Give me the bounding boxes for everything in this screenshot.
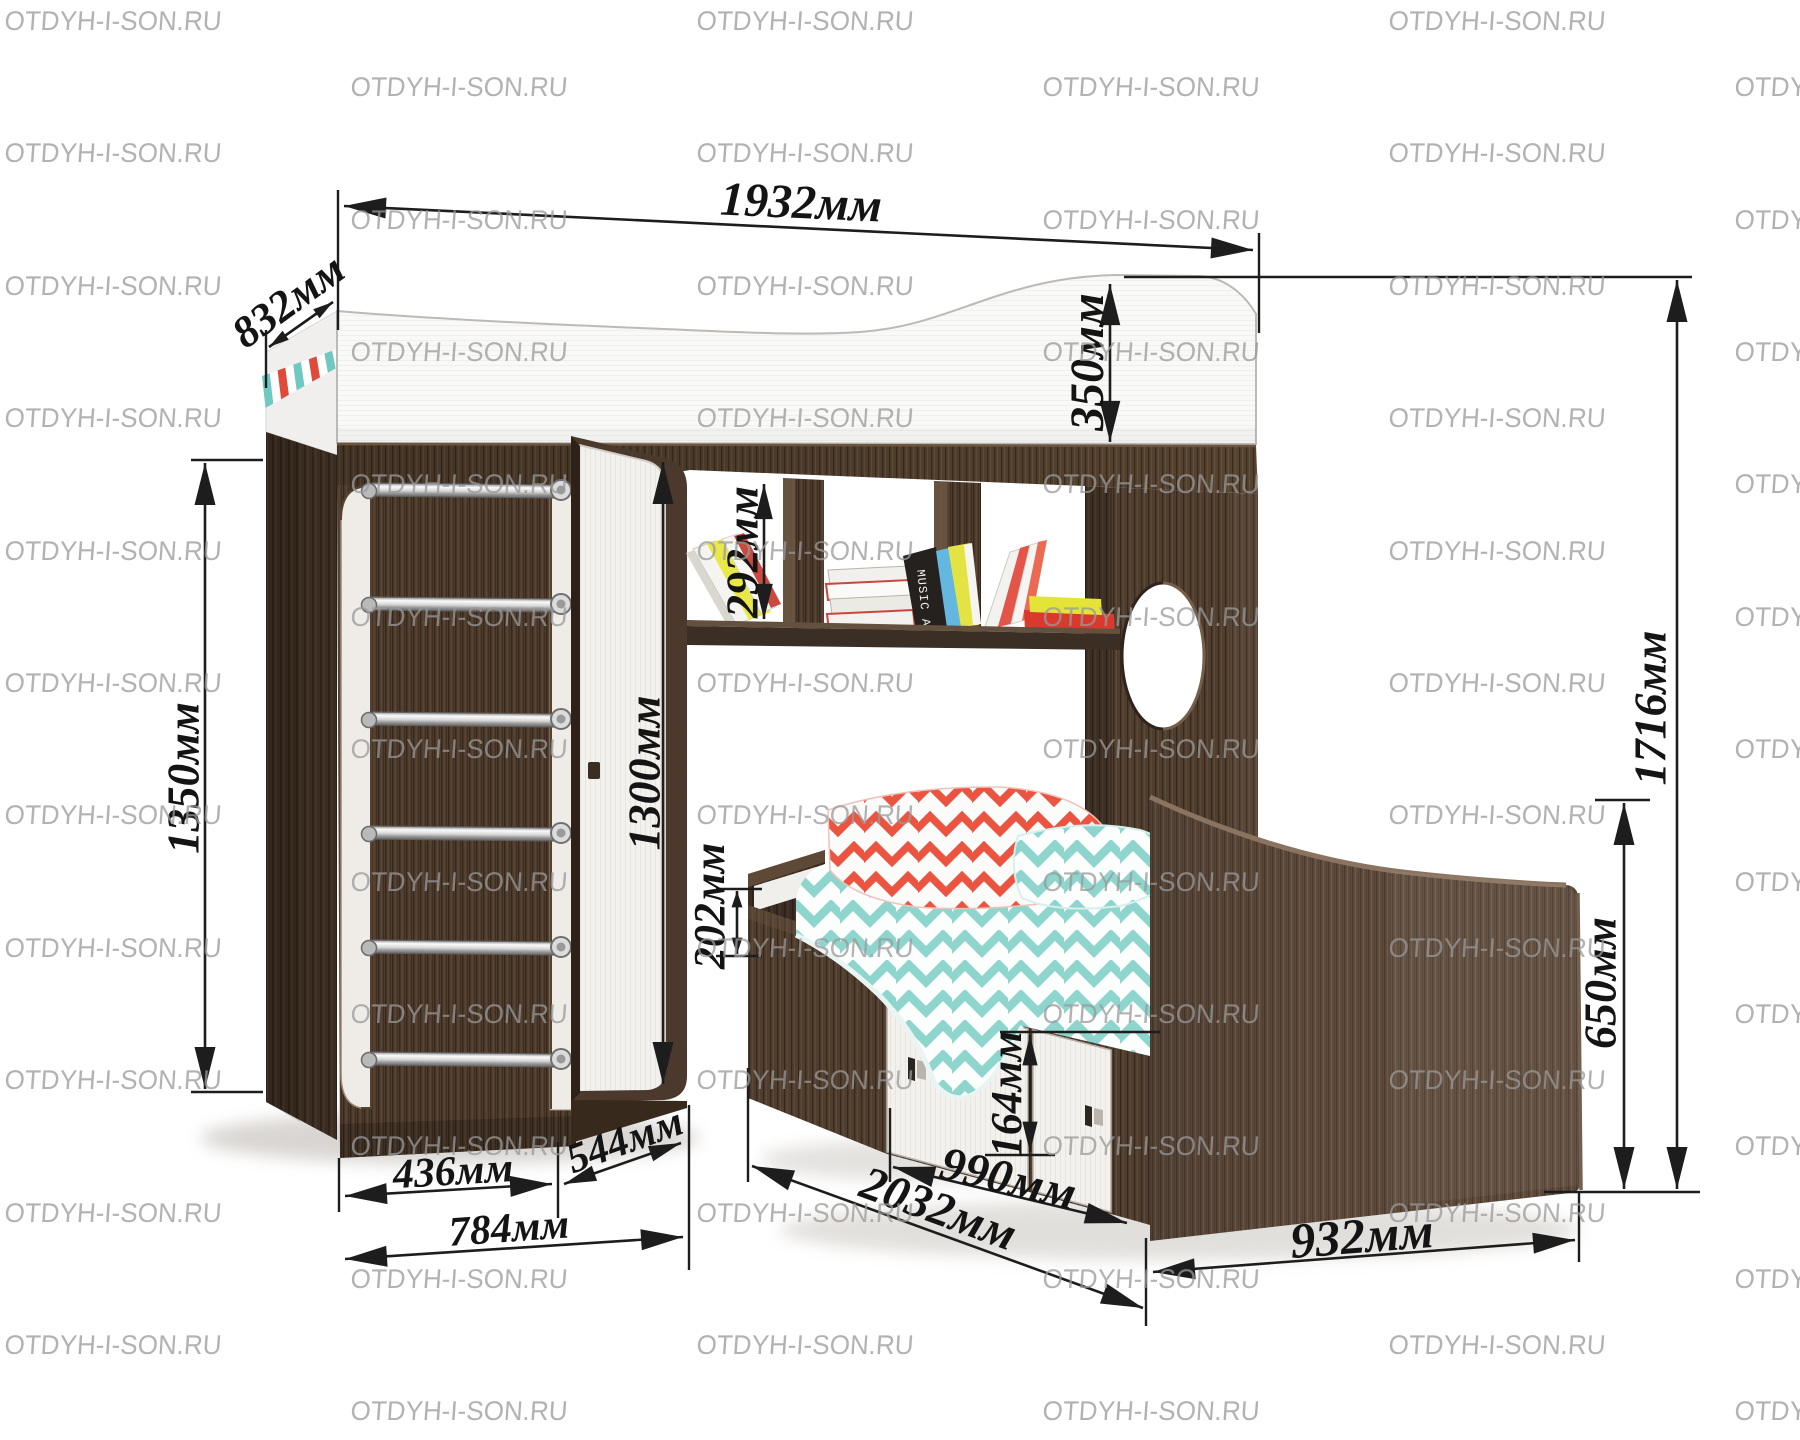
svg-text:OTDYH-I-SON.RU: OTDYH-I-SON.RU — [350, 1396, 569, 1426]
svg-text:OTDYH-I-SON.RU: OTDYH-I-SON.RU — [350, 469, 569, 499]
svg-text:OTDYH-I-SON.RU: OTDYH-I-SON.RU — [1734, 72, 1800, 102]
svg-text:OTDYH-I-SON.RU: OTDYH-I-SON.RU — [4, 138, 223, 168]
svg-text:1350мм: 1350мм — [158, 702, 208, 854]
svg-text:OTDYH-I-SON.RU: OTDYH-I-SON.RU — [4, 6, 223, 36]
svg-text:164мм: 164мм — [982, 1031, 1031, 1157]
svg-text:OTDYH-I-SON.RU: OTDYH-I-SON.RU — [696, 1198, 915, 1228]
svg-text:OTDYH-I-SON.RU: OTDYH-I-SON.RU — [1388, 6, 1607, 36]
svg-text:OTDYH-I-SON.RU: OTDYH-I-SON.RU — [1042, 337, 1261, 367]
svg-text:OTDYH-I-SON.RU: OTDYH-I-SON.RU — [4, 403, 223, 433]
svg-text:OTDYH-I-SON.RU: OTDYH-I-SON.RU — [1734, 1131, 1800, 1161]
svg-text:OTDYH-I-SON.RU: OTDYH-I-SON.RU — [1388, 1065, 1607, 1095]
svg-text:OTDYH-I-SON.RU: OTDYH-I-SON.RU — [4, 933, 223, 963]
svg-text:OTDYH-I-SON.RU: OTDYH-I-SON.RU — [1388, 536, 1607, 566]
svg-text:OTDYH-I-SON.RU: OTDYH-I-SON.RU — [1388, 1198, 1607, 1228]
svg-text:OTDYH-I-SON.RU: OTDYH-I-SON.RU — [696, 933, 915, 963]
svg-text:OTDYH-I-SON.RU: OTDYH-I-SON.RU — [1388, 1330, 1607, 1360]
svg-text:OTDYH-I-SON.RU: OTDYH-I-SON.RU — [1042, 1264, 1261, 1294]
svg-text:OTDYH-I-SON.RU: OTDYH-I-SON.RU — [350, 1264, 569, 1294]
svg-text:OTDYH-I-SON.RU: OTDYH-I-SON.RU — [350, 602, 569, 632]
svg-text:OTDYH-I-SON.RU: OTDYH-I-SON.RU — [350, 999, 569, 1029]
svg-text:OTDYH-I-SON.RU: OTDYH-I-SON.RU — [4, 271, 223, 301]
svg-text:OTDYH-I-SON.RU: OTDYH-I-SON.RU — [1734, 205, 1800, 235]
svg-text:OTDYH-I-SON.RU: OTDYH-I-SON.RU — [1734, 469, 1800, 499]
svg-text:OTDYH-I-SON.RU: OTDYH-I-SON.RU — [1734, 337, 1800, 367]
svg-text:OTDYH-I-SON.RU: OTDYH-I-SON.RU — [1734, 999, 1800, 1029]
svg-text:OTDYH-I-SON.RU: OTDYH-I-SON.RU — [1042, 1396, 1261, 1426]
svg-text:OTDYH-I-SON.RU: OTDYH-I-SON.RU — [4, 536, 223, 566]
svg-text:OTDYH-I-SON.RU: OTDYH-I-SON.RU — [1042, 72, 1261, 102]
svg-text:OTDYH-I-SON.RU: OTDYH-I-SON.RU — [696, 536, 915, 566]
svg-text:OTDYH-I-SON.RU: OTDYH-I-SON.RU — [1734, 1396, 1800, 1426]
svg-text:OTDYH-I-SON.RU: OTDYH-I-SON.RU — [696, 1065, 915, 1095]
svg-text:1716мм: 1716мм — [1625, 630, 1676, 785]
svg-text:OTDYH-I-SON.RU: OTDYH-I-SON.RU — [1042, 1131, 1261, 1161]
svg-text:OTDYH-I-SON.RU: OTDYH-I-SON.RU — [1388, 668, 1607, 698]
svg-text:OTDYH-I-SON.RU: OTDYH-I-SON.RU — [1388, 138, 1607, 168]
svg-text:OTDYH-I-SON.RU: OTDYH-I-SON.RU — [696, 6, 915, 36]
svg-text:OTDYH-I-SON.RU: OTDYH-I-SON.RU — [4, 1065, 223, 1095]
svg-text:OTDYH-I-SON.RU: OTDYH-I-SON.RU — [1388, 403, 1607, 433]
svg-text:OTDYH-I-SON.RU: OTDYH-I-SON.RU — [696, 403, 915, 433]
svg-text:OTDYH-I-SON.RU: OTDYH-I-SON.RU — [4, 1198, 223, 1228]
svg-text:OTDYH-I-SON.RU: OTDYH-I-SON.RU — [1042, 469, 1261, 499]
svg-text:OTDYH-I-SON.RU: OTDYH-I-SON.RU — [1042, 867, 1261, 897]
svg-text:OTDYH-I-SON.RU: OTDYH-I-SON.RU — [696, 271, 915, 301]
svg-text:OTDYH-I-SON.RU: OTDYH-I-SON.RU — [4, 668, 223, 698]
svg-text:OTDYH-I-SON.RU: OTDYH-I-SON.RU — [1042, 205, 1261, 235]
svg-text:OTDYH-I-SON.RU: OTDYH-I-SON.RU — [1042, 734, 1261, 764]
svg-text:OTDYH-I-SON.RU: OTDYH-I-SON.RU — [696, 668, 915, 698]
svg-text:OTDYH-I-SON.RU: OTDYH-I-SON.RU — [350, 1131, 569, 1161]
svg-text:OTDYH-I-SON.RU: OTDYH-I-SON.RU — [696, 1330, 915, 1360]
svg-text:1300мм: 1300мм — [619, 695, 670, 850]
svg-text:784мм: 784мм — [447, 1201, 570, 1255]
svg-text:OTDYH-I-SON.RU: OTDYH-I-SON.RU — [350, 72, 569, 102]
svg-text:OTDYH-I-SON.RU: OTDYH-I-SON.RU — [696, 138, 915, 168]
svg-text:OTDYH-I-SON.RU: OTDYH-I-SON.RU — [350, 337, 569, 367]
svg-text:OTDYH-I-SON.RU: OTDYH-I-SON.RU — [1042, 602, 1261, 632]
svg-text:OTDYH-I-SON.RU: OTDYH-I-SON.RU — [696, 800, 915, 830]
svg-text:OTDYH-I-SON.RU: OTDYH-I-SON.RU — [1042, 999, 1261, 1029]
svg-text:OTDYH-I-SON.RU: OTDYH-I-SON.RU — [350, 205, 569, 235]
svg-text:OTDYH-I-SON.RU: OTDYH-I-SON.RU — [4, 1330, 223, 1360]
svg-text:OTDYH-I-SON.RU: OTDYH-I-SON.RU — [1388, 933, 1607, 963]
svg-text:OTDYH-I-SON.RU: OTDYH-I-SON.RU — [1388, 800, 1607, 830]
svg-text:OTDYH-I-SON.RU: OTDYH-I-SON.RU — [4, 800, 223, 830]
svg-text:OTDYH-I-SON.RU: OTDYH-I-SON.RU — [1388, 271, 1607, 301]
svg-text:OTDYH-I-SON.RU: OTDYH-I-SON.RU — [1734, 1264, 1800, 1294]
svg-text:OTDYH-I-SON.RU: OTDYH-I-SON.RU — [1734, 867, 1800, 897]
svg-text:1932мм: 1932мм — [719, 173, 883, 233]
svg-text:OTDYH-I-SON.RU: OTDYH-I-SON.RU — [1734, 734, 1800, 764]
svg-text:OTDYH-I-SON.RU: OTDYH-I-SON.RU — [1734, 602, 1800, 632]
svg-text:OTDYH-I-SON.RU: OTDYH-I-SON.RU — [350, 867, 569, 897]
svg-text:OTDYH-I-SON.RU: OTDYH-I-SON.RU — [350, 734, 569, 764]
